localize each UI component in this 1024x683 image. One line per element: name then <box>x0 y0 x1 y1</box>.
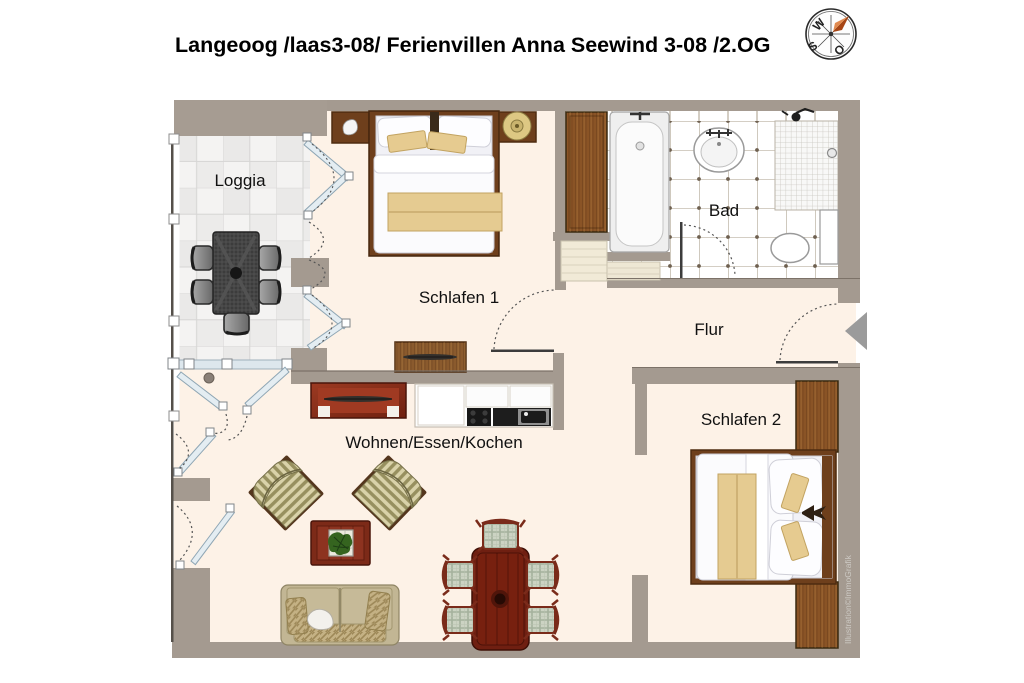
svg-text:Schlafen 2: Schlafen 2 <box>701 410 781 429</box>
svg-text:Loggia: Loggia <box>214 171 266 190</box>
svg-text:Schlafen 1: Schlafen 1 <box>419 288 499 307</box>
svg-text:Illustration©ImmoGrafik: Illustration©ImmoGrafik <box>843 554 853 644</box>
svg-text:Bad: Bad <box>709 201 739 220</box>
svg-text:Langeoog /laas3-08/ Ferienvill: Langeoog /laas3-08/ Ferienvillen Anna Se… <box>175 33 770 57</box>
svg-text:Flur: Flur <box>694 320 724 339</box>
svg-text:Wohnen/Essen/Kochen: Wohnen/Essen/Kochen <box>345 433 522 452</box>
